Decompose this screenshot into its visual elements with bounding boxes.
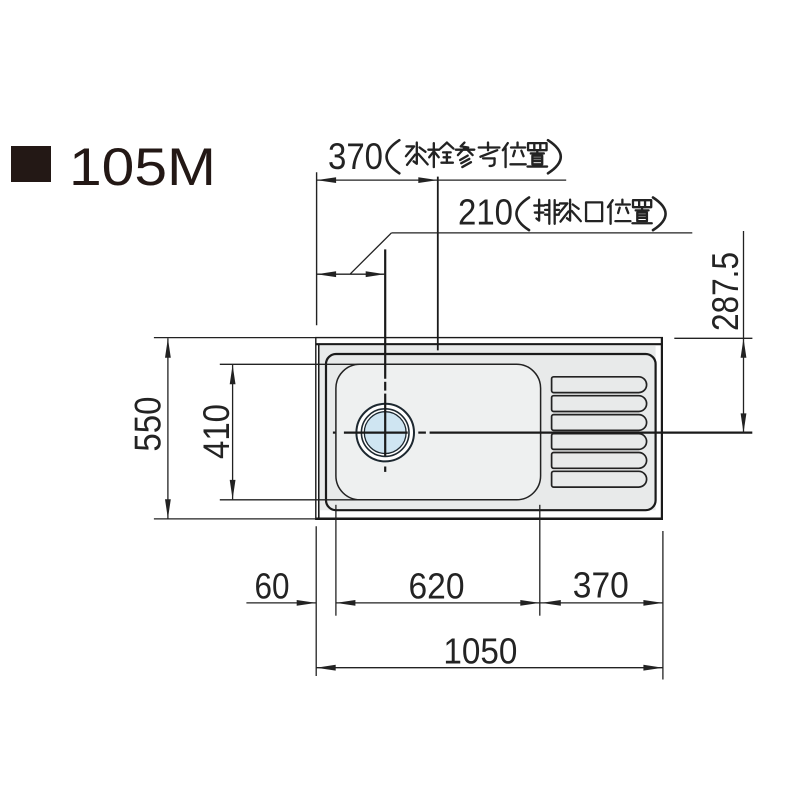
svg-text:105M: 105M (69, 138, 216, 197)
svg-text:620: 620 (409, 566, 465, 607)
svg-text:210: 210 (458, 191, 513, 232)
svg-text:1050: 1050 (443, 631, 517, 672)
svg-text:287.5: 287.5 (705, 252, 746, 331)
svg-text:410: 410 (196, 404, 237, 459)
svg-text:370: 370 (573, 565, 629, 606)
svg-text:60: 60 (255, 566, 290, 607)
svg-text:550: 550 (127, 397, 168, 452)
svg-text:370: 370 (328, 136, 383, 177)
